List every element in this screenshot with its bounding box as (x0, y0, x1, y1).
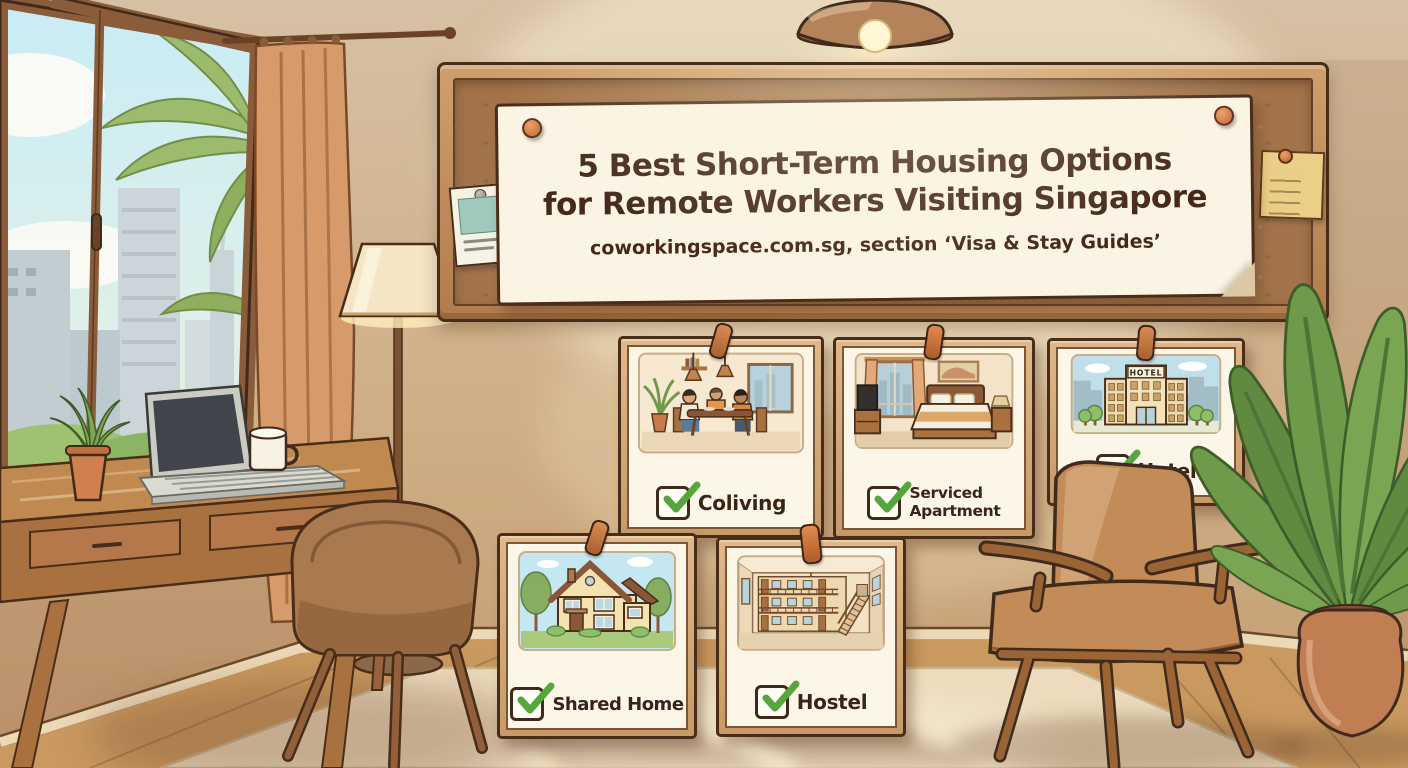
card-hotel: HOTEL (1047, 338, 1245, 506)
card-hostel: Hostel (716, 537, 906, 737)
wooden-clip-icon (799, 523, 823, 565)
illustration-scene: 5 Best Short-Term Housing Options for Re… (0, 0, 1408, 768)
check-icon (660, 480, 700, 516)
card-label-line1: Serviced (909, 485, 1000, 503)
card-coliving: Coliving (618, 336, 824, 538)
pushpin-icon (1214, 106, 1234, 126)
card-label: Hotel (1138, 459, 1197, 483)
checkbox (755, 685, 789, 719)
card-label-line2: Apartment (909, 503, 1000, 521)
hotel-photo: HOTEL (1067, 354, 1225, 434)
hostel-photo (737, 553, 885, 653)
card-label: Hostel (797, 690, 868, 714)
hotel-sign: HOTEL (1130, 368, 1163, 377)
card-shared-home: Shared Home (497, 533, 697, 739)
window-handle (92, 214, 101, 250)
check-icon (871, 480, 911, 516)
checkbox (656, 486, 690, 520)
card-label: Serviced Apartment (909, 485, 1000, 521)
pushpin-icon (522, 118, 542, 138)
wooden-clip-icon (1135, 324, 1156, 361)
sticky-note (1259, 150, 1325, 220)
card-label: Shared Home (552, 694, 683, 715)
poster: 5 Best Short-Term Housing Options for Re… (495, 94, 1255, 305)
polaroid-caption-line (464, 246, 494, 252)
coliving-photo (638, 352, 804, 454)
check-icon (1100, 448, 1140, 484)
checkbox (1096, 454, 1130, 488)
poster-subtitle: coworkingspace.com.sg, section ‘Visa & S… (590, 231, 1161, 260)
shared-home-photo (518, 549, 676, 653)
card-label: Coliving (698, 491, 786, 515)
check-icon (514, 681, 554, 717)
poster-title-line2: for Remote Workers Visiting Singapore (499, 177, 1251, 225)
check-icon (759, 679, 799, 715)
pushpin-icon (1278, 148, 1294, 164)
bulletin-board: 5 Best Short-Term Housing Options for Re… (437, 62, 1329, 322)
card-serviced-apartment: Serviced Apartment (833, 337, 1035, 539)
checkbox (510, 687, 544, 721)
checkbox (867, 486, 901, 520)
serviced-apartment-photo (854, 353, 1014, 449)
page-curl (1221, 262, 1255, 296)
